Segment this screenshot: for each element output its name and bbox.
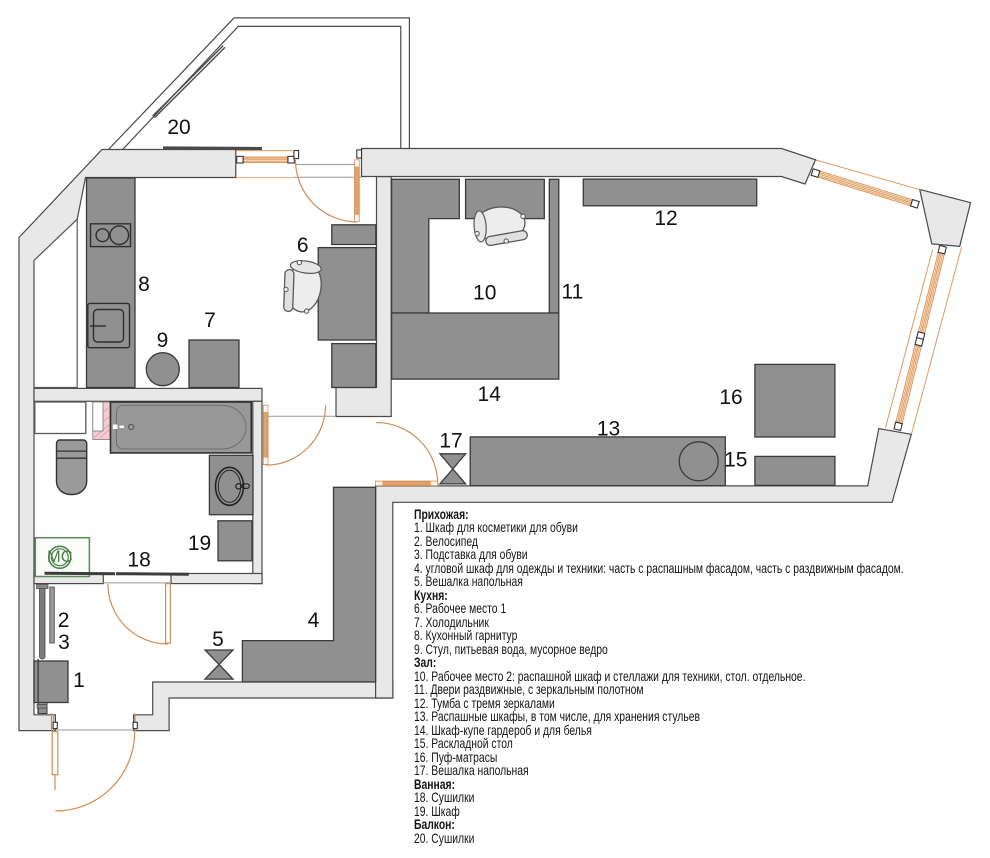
svg-text:7: 7 (204, 309, 216, 332)
svg-text:9: 9 (157, 329, 169, 352)
svg-text:16: 16 (719, 386, 742, 409)
svg-text:19: 19 (188, 532, 211, 555)
svg-text:15: 15 (724, 449, 747, 472)
svg-text:1: 1 (73, 669, 85, 692)
svg-text:10: 10 (473, 282, 496, 305)
svg-text:12: 12 (654, 207, 677, 230)
svg-text:4: 4 (308, 609, 320, 632)
svg-text:2: 2 (58, 609, 70, 632)
svg-text:17: 17 (439, 430, 462, 453)
svg-text:МС: МС (47, 548, 73, 566)
svg-text:5: 5 (212, 628, 224, 651)
svg-text:14: 14 (478, 383, 502, 406)
svg-text:13: 13 (597, 418, 620, 441)
svg-text:6: 6 (297, 234, 309, 257)
svg-text:18: 18 (127, 549, 150, 572)
svg-text:20: 20 (167, 116, 190, 139)
svg-text:11: 11 (561, 281, 583, 304)
svg-text:3: 3 (58, 631, 70, 654)
svg-text:8: 8 (138, 273, 150, 296)
